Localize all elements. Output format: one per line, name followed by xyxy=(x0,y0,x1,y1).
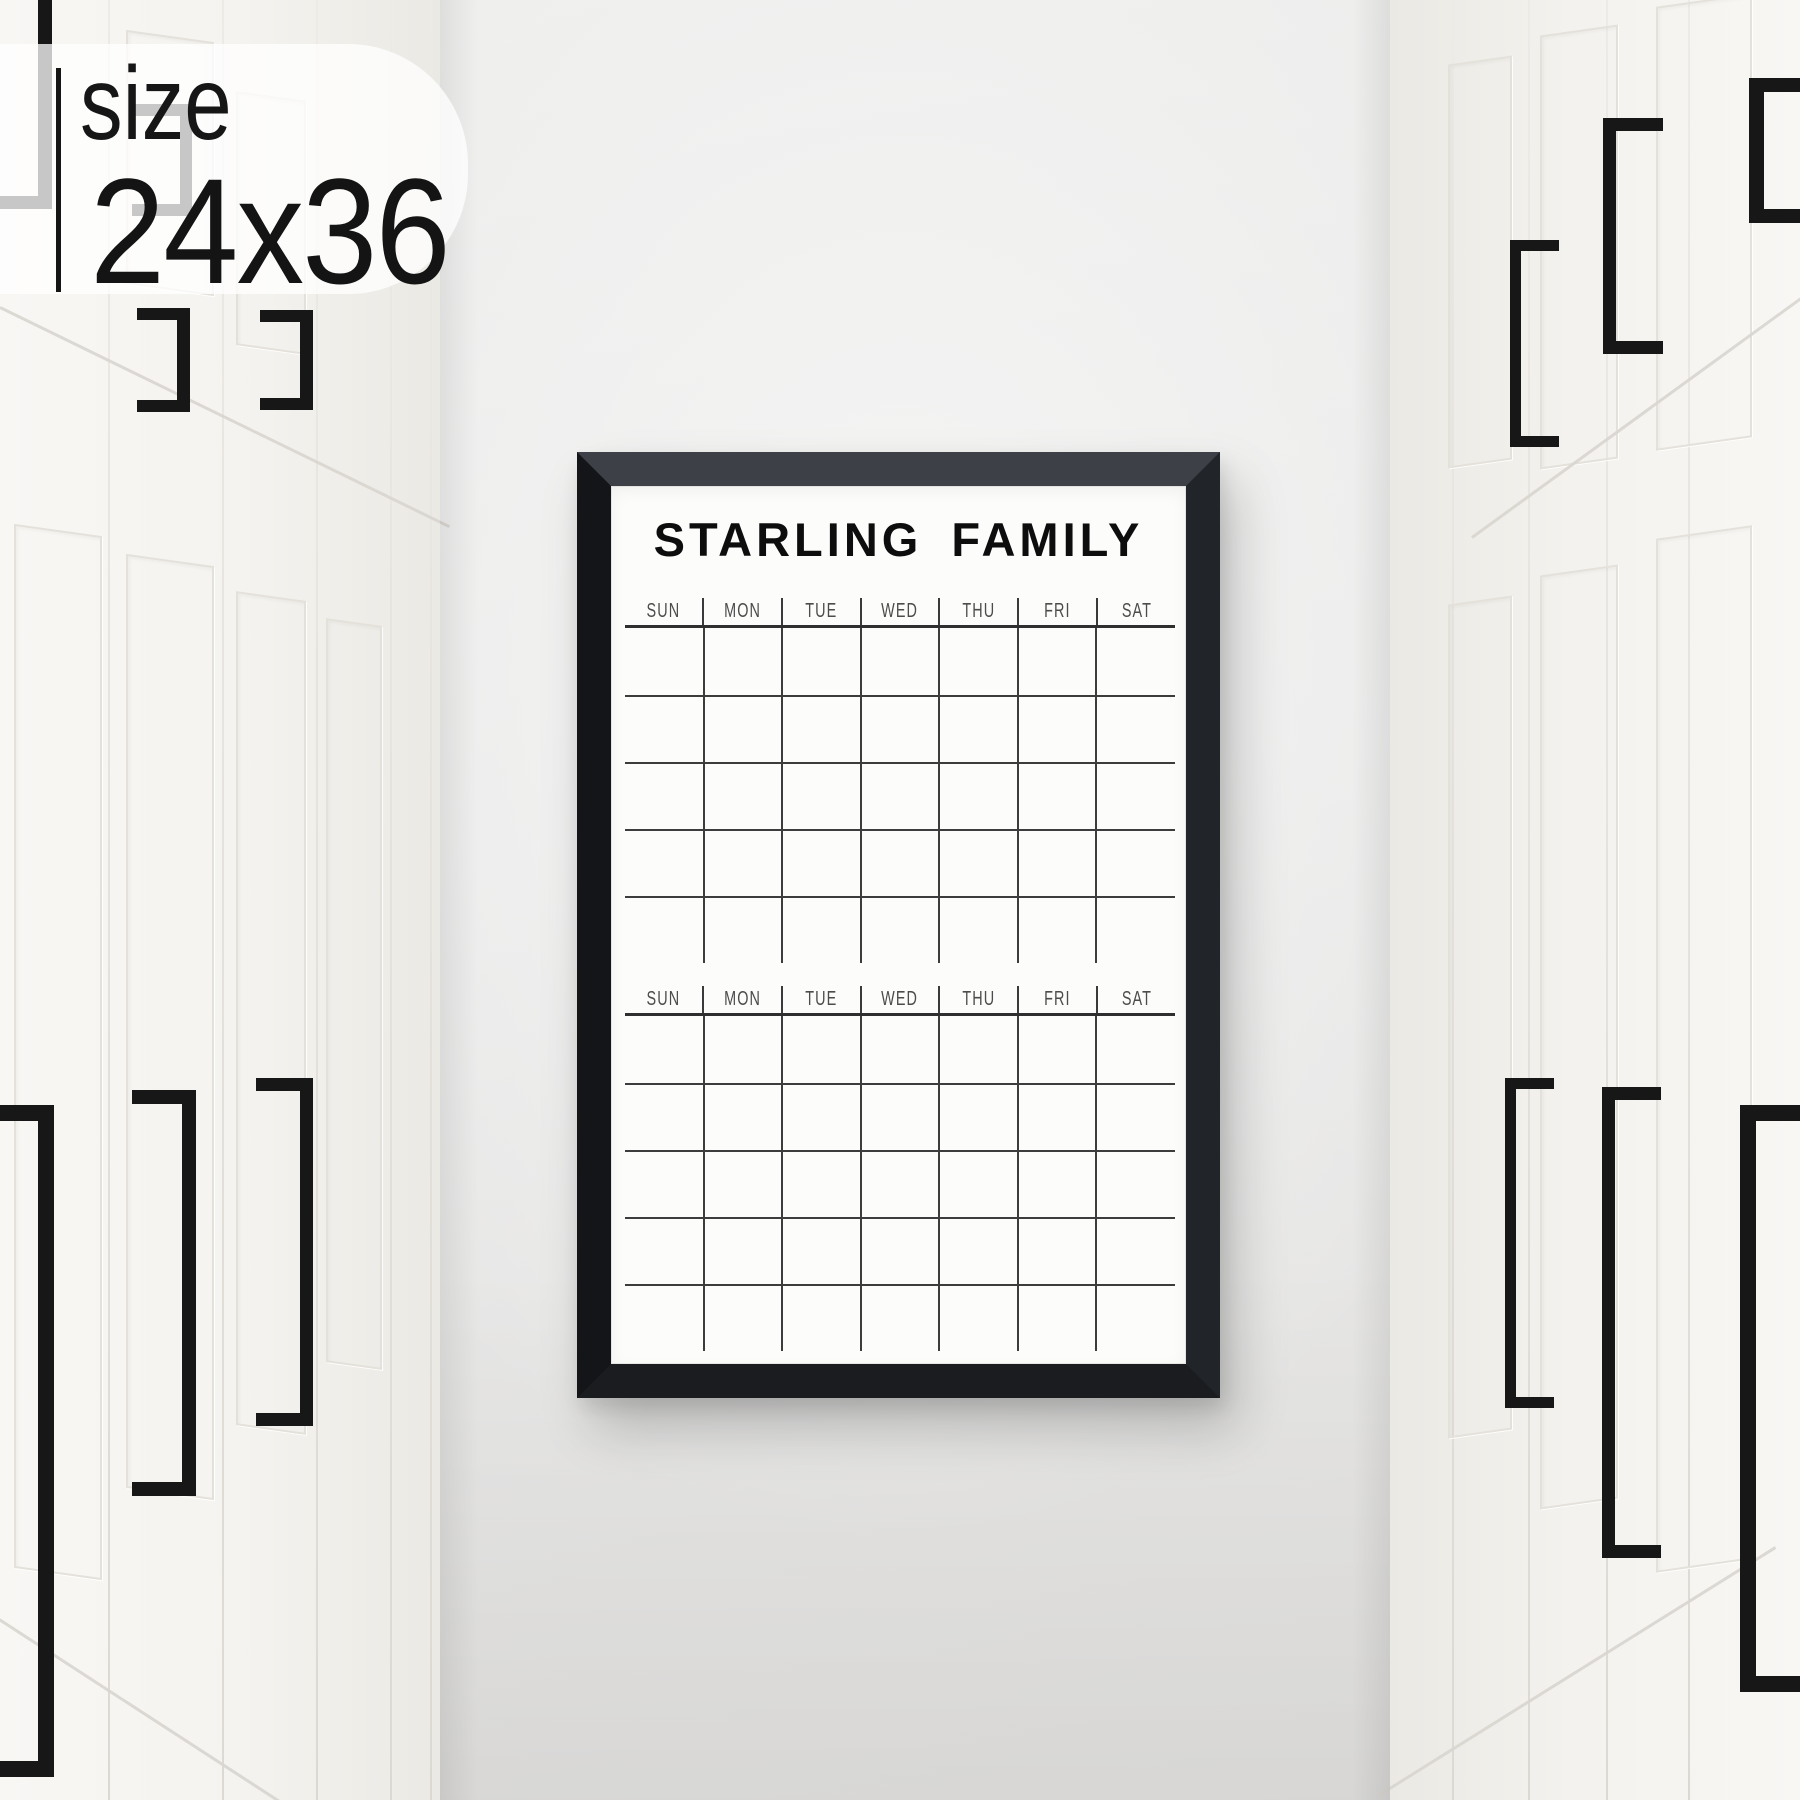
day-header-cell: WED xyxy=(860,986,939,1013)
day-header-cell: THU xyxy=(938,986,1017,1013)
cabinet-right xyxy=(1390,0,1800,1800)
day-header-label: SAT xyxy=(1121,988,1151,1011)
grid-column-line xyxy=(938,628,940,963)
cabinet-handle xyxy=(1603,118,1663,354)
day-header-label: FRI xyxy=(1045,600,1071,623)
grid-column-line xyxy=(1017,1016,1019,1351)
day-header-label: FRI xyxy=(1045,988,1071,1011)
badge-size-value: 24x36 xyxy=(90,156,449,306)
grid-row-line xyxy=(625,829,1175,831)
cabinet-handle xyxy=(1510,240,1559,447)
day-header-label: MON xyxy=(724,600,761,623)
size-badge: size 24x36 xyxy=(0,44,468,294)
cabinet-wall-shadow xyxy=(1352,0,1390,1800)
day-header-cell: SUN xyxy=(625,598,702,625)
day-header-cell: WED xyxy=(860,598,939,625)
grid-row-line xyxy=(625,695,1175,697)
grid-column-line xyxy=(860,1016,862,1351)
grid-row-line xyxy=(625,762,1175,764)
day-header-label: WED xyxy=(882,988,919,1011)
day-header-label: SUN xyxy=(647,600,681,623)
door-panel xyxy=(1448,596,1512,1439)
day-header-label: THU xyxy=(962,600,995,623)
day-header-row: SUN MON TUE WED THU FRI SAT xyxy=(625,598,1175,628)
day-header-cell: SAT xyxy=(1096,598,1175,625)
door-panel xyxy=(1448,56,1512,469)
cabinet-handle xyxy=(0,1105,54,1777)
day-header-label: WED xyxy=(882,600,919,623)
grid-column-line xyxy=(781,1016,783,1351)
grid-column-line xyxy=(781,628,783,963)
grid-column-line xyxy=(860,628,862,963)
grid-row-line xyxy=(625,1284,1175,1286)
day-header-label: TUE xyxy=(805,988,837,1011)
day-header-label: MON xyxy=(724,988,761,1011)
grid-row-line xyxy=(625,1150,1175,1152)
calendar-frame: STARLING FAMILY SUN MON TUE WED THU FRI … xyxy=(577,452,1220,1398)
cabinet-handle xyxy=(256,1078,313,1426)
day-header-cell: TUE xyxy=(781,598,860,625)
day-header-cell: FRI xyxy=(1017,986,1096,1013)
day-header-label: SUN xyxy=(647,988,681,1011)
grid-row-line xyxy=(625,1083,1175,1085)
grid-column-line xyxy=(1095,628,1097,963)
badge-divider-line xyxy=(56,68,61,292)
grid-row-line xyxy=(625,896,1175,898)
day-header-label: TUE xyxy=(805,600,837,623)
floor-line xyxy=(1376,1546,1776,1798)
badge-size-label: size xyxy=(80,52,232,156)
day-header-cell: FRI xyxy=(1017,598,1096,625)
day-header-cell: MON xyxy=(702,598,781,625)
day-header-label: THU xyxy=(962,988,995,1011)
grid-column-line xyxy=(1095,1016,1097,1351)
day-header-label: SAT xyxy=(1121,600,1151,623)
floor-line xyxy=(0,1612,427,1800)
cabinet-handle xyxy=(1749,78,1800,223)
cabinet-handle xyxy=(260,310,313,410)
month-week-grid xyxy=(625,1016,1175,1351)
month-week-grid xyxy=(625,628,1175,963)
month-grid-top: SUN MON TUE WED THU FRI SAT xyxy=(625,598,1175,963)
calendar-board: STARLING FAMILY SUN MON TUE WED THU FRI … xyxy=(611,486,1186,1364)
door-panel xyxy=(1656,0,1752,451)
soffit-line xyxy=(0,306,450,528)
day-header-cell: THU xyxy=(938,598,1017,625)
day-header-cell: SAT xyxy=(1096,986,1175,1013)
door-panel xyxy=(1656,525,1752,1572)
grid-column-line xyxy=(703,1016,705,1351)
cabinet-handle xyxy=(1740,1105,1800,1692)
cabinet-handle xyxy=(137,308,190,412)
cabinet-handle xyxy=(1602,1087,1661,1558)
grid-row-line xyxy=(625,1217,1175,1219)
cabinet-handle xyxy=(132,1090,196,1496)
day-header-cell: TUE xyxy=(781,986,860,1013)
calendar-title: STARLING FAMILY xyxy=(611,512,1186,567)
door-panel xyxy=(326,618,382,1370)
month-grid-bottom: SUN MON TUE WED THU FRI SAT xyxy=(625,986,1175,1351)
day-header-cell: SUN xyxy=(625,986,702,1013)
cabinet-handle xyxy=(1505,1078,1554,1408)
day-header-row: SUN MON TUE WED THU FRI SAT xyxy=(625,986,1175,1016)
day-header-cell: MON xyxy=(702,986,781,1013)
grid-column-line xyxy=(703,628,705,963)
product-photo: STARLING FAMILY SUN MON TUE WED THU FRI … xyxy=(0,0,1800,1800)
grid-column-line xyxy=(938,1016,940,1351)
grid-column-line xyxy=(1017,628,1019,963)
